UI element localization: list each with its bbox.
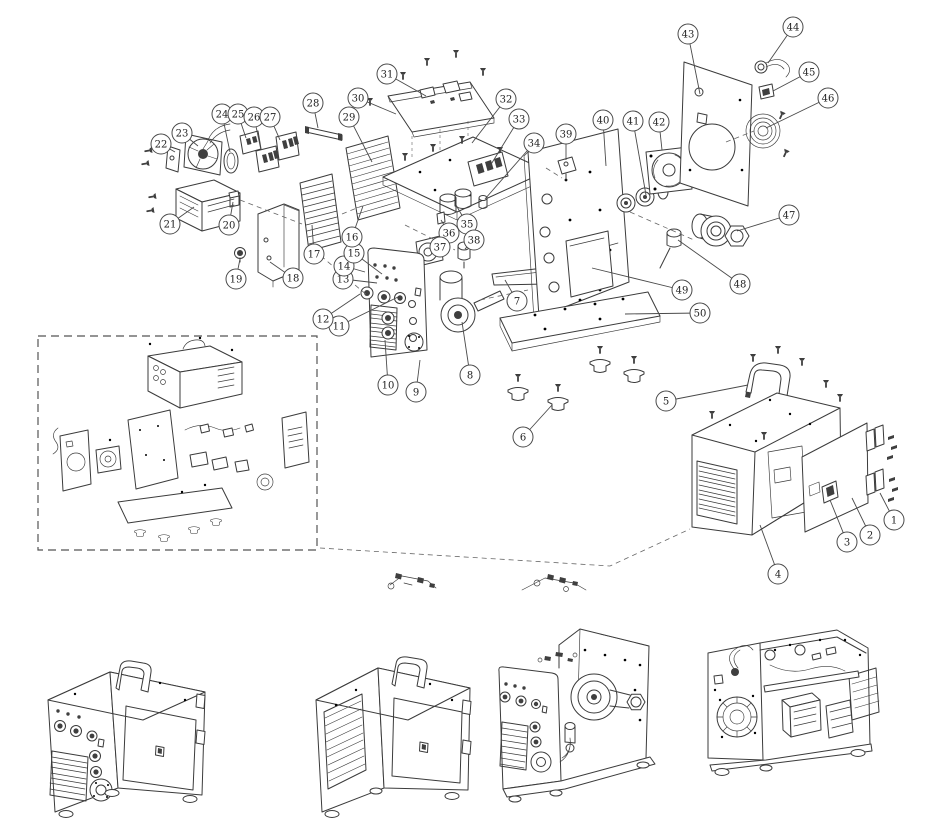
callout-41: 41 bbox=[623, 111, 643, 131]
callout-44: 44 bbox=[783, 17, 803, 37]
inset-mini-exploded-view bbox=[53, 337, 309, 542]
callout-7: 7 bbox=[507, 291, 527, 311]
callout-number-41: 41 bbox=[627, 117, 640, 128]
callout-39: 39 bbox=[556, 124, 576, 144]
cable-gland bbox=[755, 59, 790, 77]
callout-number-40: 40 bbox=[597, 116, 610, 127]
callout-number-20: 20 bbox=[223, 221, 236, 232]
callout-32: 32 bbox=[496, 89, 516, 109]
callout-leader-5 bbox=[666, 385, 748, 401]
bracket-cluster-right bbox=[522, 574, 586, 592]
heatsink-small bbox=[300, 174, 341, 251]
callout-number-17: 17 bbox=[308, 250, 321, 261]
callout-19: 19 bbox=[226, 269, 246, 289]
callout-number-49: 49 bbox=[676, 286, 689, 297]
callout-number-29: 29 bbox=[343, 113, 356, 124]
assembled-view-front-left bbox=[48, 661, 205, 818]
main-exploded-view bbox=[141, 50, 898, 592]
callout-number-4: 4 bbox=[775, 570, 781, 581]
insulation-sheet bbox=[566, 231, 613, 297]
front-panel bbox=[361, 248, 427, 357]
callout-31: 31 bbox=[377, 64, 397, 84]
callout-9: 9 bbox=[406, 382, 426, 402]
callout-17: 17 bbox=[304, 244, 324, 264]
callout-number-48: 48 bbox=[734, 280, 747, 291]
callout-46: 46 bbox=[818, 88, 838, 108]
callout-number-39: 39 bbox=[560, 130, 573, 141]
callout-5: 5 bbox=[656, 391, 676, 411]
assembled-views bbox=[48, 629, 879, 818]
callout-10: 10 bbox=[378, 375, 398, 395]
pcb-cards bbox=[224, 131, 299, 173]
callout-1: 1 bbox=[884, 510, 904, 530]
callout-number-5: 5 bbox=[663, 397, 669, 408]
callout-number-22: 22 bbox=[155, 140, 168, 151]
callout-number-38: 38 bbox=[468, 236, 481, 247]
exploded-parts-diagram-page: 1234567891011121314151617181920212223242… bbox=[0, 0, 945, 839]
callout-number-16: 16 bbox=[346, 233, 359, 244]
callout-number-9: 9 bbox=[413, 388, 419, 399]
callout-number-23: 23 bbox=[176, 129, 189, 140]
callout-number-50: 50 bbox=[694, 309, 707, 320]
assembled-view-cover-removed bbox=[499, 629, 655, 802]
callout-6: 6 bbox=[513, 427, 533, 447]
callout-number-26: 26 bbox=[248, 113, 261, 124]
callout-21: 21 bbox=[160, 214, 180, 234]
callout-number-21: 21 bbox=[164, 220, 177, 231]
exploded-parts-diagram: 1234567891011121314151617181920212223242… bbox=[0, 0, 945, 839]
callout-33: 33 bbox=[509, 109, 529, 129]
callout-number-37: 37 bbox=[434, 243, 447, 254]
callout-number-2: 2 bbox=[867, 531, 873, 542]
rear-panel bbox=[680, 62, 752, 206]
callout-number-3: 3 bbox=[844, 538, 850, 549]
callout-2: 2 bbox=[860, 525, 880, 545]
adapter-pin bbox=[660, 229, 681, 268]
callout-number-46: 46 bbox=[822, 94, 835, 105]
callout-42: 42 bbox=[649, 112, 669, 132]
callout-number-47: 47 bbox=[783, 211, 796, 222]
callout-number-33: 33 bbox=[513, 115, 526, 126]
callout-20: 20 bbox=[219, 215, 239, 235]
callout-number-10: 10 bbox=[382, 381, 395, 392]
callout-number-43: 43 bbox=[682, 30, 695, 41]
callout-number-45: 45 bbox=[803, 68, 816, 79]
callout-28: 28 bbox=[303, 93, 323, 113]
callout-27: 27 bbox=[260, 107, 280, 127]
callout-number-28: 28 bbox=[307, 99, 320, 110]
callout-number-11: 11 bbox=[333, 322, 346, 333]
callout-47: 47 bbox=[779, 205, 799, 225]
callout-45: 45 bbox=[799, 62, 819, 82]
fan-guard-coil bbox=[746, 111, 790, 159]
callout-29: 29 bbox=[339, 107, 359, 127]
callout-48: 48 bbox=[730, 274, 750, 294]
callout-3: 3 bbox=[837, 532, 857, 552]
callout-number-42: 42 bbox=[653, 118, 666, 129]
callout-23: 23 bbox=[172, 123, 192, 143]
callout-4: 4 bbox=[768, 564, 788, 584]
callout-number-8: 8 bbox=[467, 371, 473, 382]
callout-30: 30 bbox=[348, 88, 368, 108]
callout-number-34: 34 bbox=[528, 139, 541, 150]
busbar bbox=[305, 126, 342, 141]
callout-number-12: 12 bbox=[317, 315, 330, 326]
callout-50: 50 bbox=[690, 303, 710, 323]
callout-18: 18 bbox=[283, 268, 303, 288]
callout-number-24: 24 bbox=[216, 110, 229, 121]
callout-number-27: 27 bbox=[264, 113, 277, 124]
callout-number-15: 15 bbox=[348, 249, 361, 260]
callout-22: 22 bbox=[151, 134, 171, 154]
callout-34: 34 bbox=[524, 133, 544, 153]
callout-leader-41 bbox=[633, 121, 646, 195]
callout-number-6: 6 bbox=[520, 433, 526, 444]
callout-8: 8 bbox=[460, 365, 480, 385]
callout-number-1: 1 bbox=[891, 516, 897, 527]
callout-number-32: 32 bbox=[500, 95, 513, 106]
callout-number-25: 25 bbox=[232, 110, 245, 121]
callout-38: 38 bbox=[464, 230, 484, 250]
rocker-switch bbox=[759, 84, 774, 99]
assembled-view-internal-rear bbox=[708, 630, 879, 776]
callout-number-14: 14 bbox=[338, 262, 351, 273]
callout-number-44: 44 bbox=[787, 23, 800, 34]
callout-16: 16 bbox=[342, 227, 362, 247]
bracket-cluster-left bbox=[388, 573, 436, 589]
main-mounting-plate bbox=[383, 136, 547, 220]
callout-40: 40 bbox=[593, 110, 613, 130]
callout-number-7: 7 bbox=[514, 297, 520, 308]
rubber-feet bbox=[508, 346, 644, 411]
assembled-view-rear-left bbox=[316, 657, 471, 818]
callout-43: 43 bbox=[678, 24, 698, 44]
callout-number-30: 30 bbox=[352, 94, 365, 105]
inset-overview-box bbox=[38, 336, 317, 550]
callout-number-31: 31 bbox=[381, 70, 394, 81]
callout-49: 49 bbox=[672, 280, 692, 300]
callout-12: 12 bbox=[313, 309, 333, 329]
callout-number-35: 35 bbox=[461, 220, 474, 231]
callout-37: 37 bbox=[430, 237, 450, 257]
callout-number-19: 19 bbox=[230, 275, 243, 286]
callout-leader-48 bbox=[678, 240, 740, 284]
door-hinges bbox=[866, 425, 898, 502]
callout-number-18: 18 bbox=[287, 274, 300, 285]
